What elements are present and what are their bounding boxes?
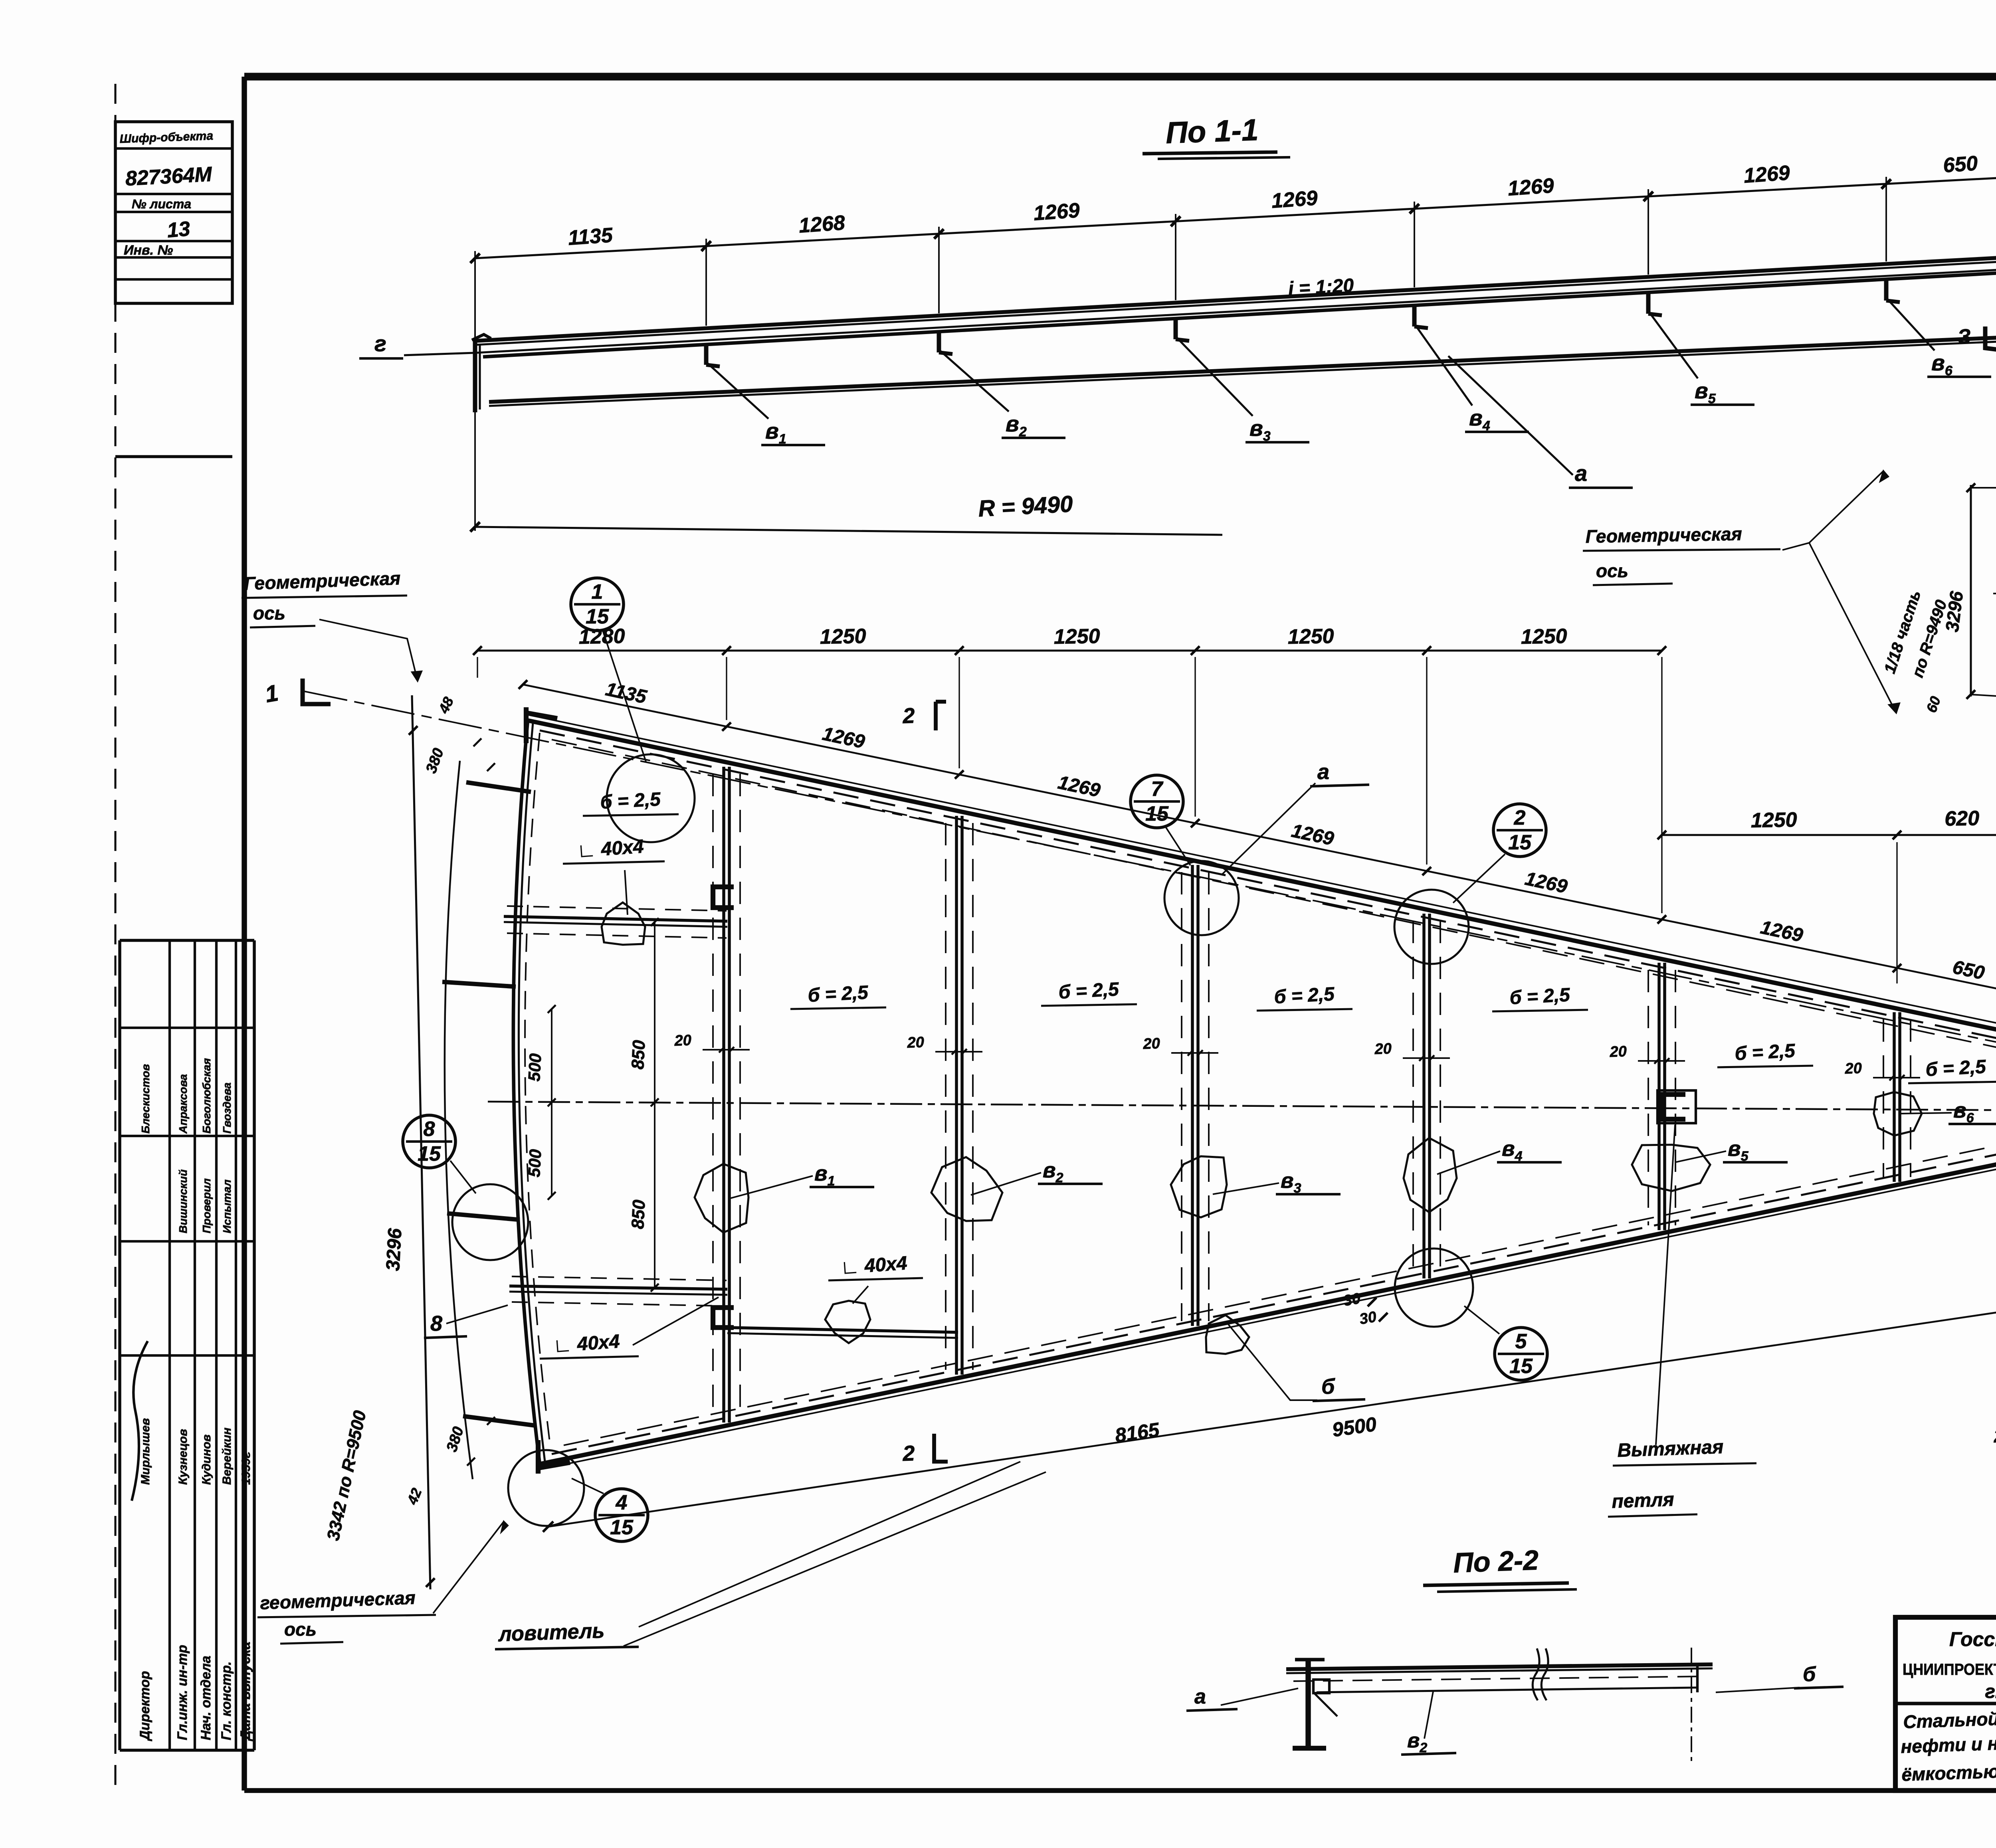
svg-text:1250: 1250 [1053,625,1100,649]
svg-text:20: 20 [1844,1060,1862,1077]
svg-text:650: 650 [1943,152,1979,177]
svg-text:5: 5 [1515,1330,1527,1353]
svg-text:850: 850 [628,1039,649,1070]
svg-text:б = 2,5: б = 2,5 [1273,983,1335,1008]
svg-text:15: 15 [1509,1355,1533,1378]
svg-text:R = 9490: R = 9490 [978,491,1073,522]
svg-text:г: г [374,331,386,356]
svg-text:1269: 1269 [1743,161,1791,188]
svg-text:15: 15 [418,1142,441,1165]
svg-text:а: а [1317,760,1329,784]
svg-text:б = 2,5: б = 2,5 [1734,1040,1796,1064]
svg-text:ось: ось [1596,560,1628,581]
svg-text:Проверил: Проверил [200,1178,213,1233]
svg-text:ось: ось [253,603,285,623]
svg-text:1250: 1250 [1750,808,1797,832]
svg-text:850: 850 [628,1199,649,1229]
svg-text:Гл.инж. ин-тр: Гл.инж. ин-тр [175,1645,190,1740]
svg-text:Боголюбская: Боголюбская [200,1058,213,1134]
svg-text:Госстрой СССР: Госстрой СССР [1949,1628,1996,1650]
svg-text:ось: ось [284,1619,317,1640]
svg-text:б = 2,5: б = 2,5 [600,789,661,813]
svg-text:30: 30 [1358,1308,1378,1328]
svg-text:2: 2 [902,1441,915,1466]
svg-text:По 1-1: По 1-1 [1165,113,1259,150]
svg-text:ЦНИИПРОЕКТСТАЛЬКОНСТРУКЦИЯ: ЦНИИПРОЕКТСТАЛЬКОНСТРУКЦИЯ [1903,1661,1996,1678]
svg-text:Апраксова: Апраксова [177,1074,189,1134]
svg-text:петля: петля [1612,1489,1675,1512]
svg-text:Кузнецов: Кузнецов [176,1429,190,1485]
svg-text:Инв. №: Инв. № [124,243,173,258]
svg-text:1250: 1250 [820,625,866,649]
svg-text:20: 20 [1143,1035,1160,1053]
svg-text:Директор: Директор [137,1671,152,1741]
svg-text:i = 1:20: i = 1:20 [1288,275,1354,300]
svg-text:Мирлышев: Мирлышев [139,1418,152,1485]
svg-text:13: 13 [166,217,191,242]
svg-text:б = 2,5: б = 2,5 [1925,1056,1987,1080]
svg-text:б = 2,5: б = 2,5 [1509,984,1571,1009]
svg-text:30: 30 [1342,1290,1362,1310]
svg-text:1959г: 1959г [240,1452,253,1485]
svg-text:20: 20 [1609,1043,1627,1061]
svg-text:20: 20 [907,1034,925,1051]
svg-text:1269: 1269 [1271,186,1319,213]
svg-text:Гл. констр.: Гл. констр. [219,1661,234,1740]
svg-text:б: б [1803,1663,1816,1686]
svg-text:1268: 1268 [798,211,846,237]
svg-text:7: 7 [1151,778,1164,801]
svg-text:1269: 1269 [1507,174,1555,200]
svg-text:827364М: 827364М [125,163,213,190]
svg-text:З: З [1957,325,1972,349]
svg-text:ловитель: ловитель [497,1619,605,1646]
svg-text:20: 20 [674,1032,692,1049]
svg-text:Вытяжная: Вытяжная [1617,1436,1724,1461]
svg-text:а: а [1575,461,1587,486]
svg-text:Нач. отдела: Нач. отдела [198,1656,214,1740]
svg-text:№ листа: № листа [132,197,191,211]
svg-text:По 2-2: По 2-2 [1453,1544,1539,1578]
svg-text:б = 2,5: б = 2,5 [1058,979,1120,1003]
svg-text:б = 2,5: б = 2,5 [807,982,869,1006]
svg-text:15: 15 [586,605,609,628]
svg-text:8: 8 [430,1312,442,1336]
svg-text:8: 8 [424,1118,435,1141]
svg-text:б: б [1321,1375,1335,1399]
svg-text:620: 620 [1945,807,1980,831]
svg-text:1269: 1269 [1033,199,1081,225]
svg-text:а: а [1194,1685,1206,1708]
svg-text:2: 2 [1514,806,1526,829]
svg-text:Вишинский: Вишинский [177,1169,189,1233]
svg-text:Испытал: Испытал [221,1179,233,1233]
svg-text:15: 15 [1145,802,1169,825]
svg-text:1250: 1250 [1521,625,1567,649]
svg-text:Верейкин: Верейкин [220,1428,234,1485]
svg-text:500: 500 [525,1149,545,1177]
svg-text:1: 1 [592,580,603,603]
svg-text:Гвоздева: Гвоздева [221,1082,233,1134]
svg-text:ёмкостью: ёмкостью [1901,1761,1996,1785]
svg-text:3296: 3296 [382,1228,406,1272]
svg-text:500: 500 [525,1053,545,1082]
svg-text:4: 4 [616,1491,628,1514]
svg-text:2: 2 [902,704,915,728]
svg-text:1250: 1250 [1287,625,1334,649]
svg-text:15: 15 [1508,831,1532,854]
svg-text:г. Москва: г. Москва [1985,1681,1996,1702]
svg-text:Кудинов: Кудинов [200,1434,213,1485]
svg-text:20: 20 [1374,1041,1392,1058]
svg-text:Геометрическая: Геометрическая [1585,523,1742,547]
svg-text:15: 15 [610,1516,634,1539]
svg-text:Блескистов: Блескистов [139,1064,152,1134]
svg-text:1135: 1135 [567,224,614,250]
svg-text:Дата выпуска: Дата выпуска [238,1642,253,1741]
